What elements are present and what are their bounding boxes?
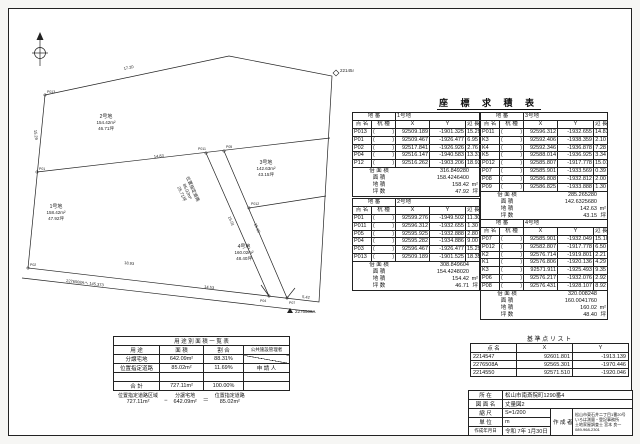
manager-cell: 申 請 人 bbox=[244, 364, 290, 373]
benchmark-row: 2276508A92565.301-1970.446 bbox=[471, 361, 629, 369]
chi-label: 地 積 bbox=[481, 206, 533, 213]
lot-area: 154.42m² bbox=[96, 120, 116, 125]
division-line-1 bbox=[37, 138, 330, 172]
coord-row: P013() 92509.189-1901.52518.35 bbox=[353, 254, 480, 262]
tsubo-unit: 坪 bbox=[597, 312, 607, 319]
parcel-map: P013 P01 P02 P011 P05 P04 P07 P012 22145… bbox=[14, 12, 354, 342]
coord-row: K3() 92592.406-1938.3592.10 bbox=[481, 136, 608, 144]
col-y: Y bbox=[558, 120, 594, 128]
formula-term-road: 位置指定道路 85.02m² bbox=[215, 392, 245, 405]
coord-rows: P011() 92596.312-1932.65514.83 K3() 9259… bbox=[481, 128, 608, 191]
lot-name: 1号地 bbox=[50, 203, 63, 210]
lot-label-3: 3号地 142.63m² 43.15坪 bbox=[256, 159, 276, 178]
coord-table-lot2: 地 番 2号地 点 名 杭 種 X Y 辺 長 P01() 92599.276-… bbox=[352, 198, 480, 291]
benchmark-row: 221454792601.801-1913.139 bbox=[471, 353, 629, 361]
unit-value: m bbox=[503, 418, 551, 427]
coord-table-lot3: 地 番 3号地 点 名 杭 種 X Y 辺 長 P011() 92596.312… bbox=[480, 112, 608, 221]
col-use: 用 途 bbox=[114, 346, 160, 355]
chi-value: 158.42 bbox=[405, 182, 469, 189]
maker-box: 松山市東石井二丁目1番20号 いろは測量・登記事務所 土地家屋調査士 宮本 良一… bbox=[573, 409, 633, 436]
tsubo-unit: 坪 bbox=[469, 283, 479, 290]
drawing-name-label: 図 面 名 bbox=[469, 400, 503, 409]
lot-number: 4号地 bbox=[524, 220, 608, 228]
tsubo-value: 47.92 bbox=[405, 189, 469, 196]
tsubo-value: 48.40 bbox=[533, 312, 597, 319]
point-label: P07 bbox=[289, 301, 295, 305]
coord-row: P013() 92509.189-1901.32515.29 bbox=[353, 128, 480, 136]
col-x: X bbox=[524, 227, 558, 235]
col-kui: 杭 種 bbox=[500, 120, 524, 128]
benchmark-table: 点 名 X Y 221454792601.801-1913.139 227650… bbox=[470, 343, 629, 377]
col-point: 点 名 bbox=[481, 227, 500, 235]
coord-row: P01() 92599.276-1949.50211.30 bbox=[353, 214, 480, 222]
lot-area: 160.02m² bbox=[234, 250, 254, 255]
term-label: 位置指定道路 bbox=[215, 392, 245, 399]
col-y: Y bbox=[430, 206, 466, 214]
usage-row-total: 合 計 727.11m² 100.00% bbox=[114, 382, 290, 391]
bai-label: 倍 面 積 bbox=[481, 192, 533, 199]
coord-row: P02() 92517.841-1926.9262.76 bbox=[353, 144, 480, 152]
sums-block: 倍 面 積316.849280 面 積158.4246400 地 積158.42… bbox=[353, 168, 480, 197]
lot-tsubo: 47.92坪 bbox=[48, 215, 64, 222]
m2-unit: m² bbox=[469, 276, 479, 283]
benchmark-label: 2214547 bbox=[340, 68, 354, 73]
col-point: 点 名 bbox=[353, 120, 372, 128]
bai-value: 308.849604 bbox=[405, 262, 469, 269]
equals-operator: ＝ bbox=[203, 395, 209, 405]
coord-row: P08() 92586.808-1932.8122.00 bbox=[481, 176, 608, 184]
lot-label-2: 2号地 154.42m² 46.71坪 bbox=[96, 113, 116, 132]
coord-row: P011() 92596.312-1932.6551.30 bbox=[353, 222, 480, 230]
lot-number: 3号地 bbox=[524, 113, 608, 121]
lot-tsubo: 46.71坪 bbox=[98, 125, 114, 132]
col-y: Y bbox=[430, 120, 466, 128]
chi-value: 142.63 bbox=[533, 206, 597, 213]
road-label: 位置指定道路 85.02m² 25.71坪 bbox=[173, 175, 202, 208]
usage-area-table: 用 途 別 面 積 一 覧 表 用 途 面 積 割 合 公共施設管理者 分譲宅地… bbox=[113, 336, 290, 391]
chi-value: 154.42 bbox=[405, 276, 469, 283]
col-point: 点 名 bbox=[481, 120, 500, 128]
point-label: P04 bbox=[260, 299, 266, 303]
term-label: 位置指定道路区域 bbox=[118, 392, 158, 399]
col-point: 点 名 bbox=[353, 206, 372, 214]
term-value: 642.09m² bbox=[174, 399, 197, 405]
col-x: X bbox=[396, 206, 430, 214]
lot-tsubo: 48.40坪 bbox=[236, 255, 252, 262]
men-label: 面 積 bbox=[481, 298, 533, 305]
men-value: 142.6325680 bbox=[533, 199, 597, 206]
use-cell: 合 計 bbox=[114, 382, 160, 391]
edge-length: 17.20 bbox=[123, 64, 135, 71]
edge-length: 15.01 bbox=[227, 215, 236, 227]
chi-label: 地 積 bbox=[353, 276, 405, 283]
bai-label: 倍 面 積 bbox=[481, 291, 533, 298]
area-cell: 85.02m² bbox=[160, 364, 204, 373]
coord-table-lot4: 地 番 4号地 点 名 杭 種 X Y 辺 長 P07() 92585.901-… bbox=[480, 219, 608, 320]
sums-block: 倍 面 積308.849604 面 積154.4248020 地 積154.42… bbox=[353, 262, 480, 291]
map-note: 2276508Aへ 145.373 bbox=[66, 278, 105, 287]
edge-length: 15.29 bbox=[33, 130, 39, 141]
men-value: 160.0041760 bbox=[533, 298, 597, 305]
point-label: P02 bbox=[30, 263, 36, 267]
term-value: 85.02m² bbox=[215, 399, 245, 405]
lot-area: 158.42m² bbox=[46, 210, 66, 215]
coord-row: P07() 92585.901-1932.04915.10 bbox=[481, 235, 608, 243]
sums-block: 倍 面 積320.008248 面 積160.0041760 地 積160.02… bbox=[481, 290, 608, 319]
col-x: X bbox=[396, 120, 430, 128]
division-line-2 bbox=[249, 196, 326, 208]
term-value: 727.11m² bbox=[118, 399, 158, 405]
col-x: X bbox=[524, 120, 558, 128]
point-label: P011 bbox=[198, 147, 206, 151]
sums-block: 倍 面 積285.265280 面 積142.6325680 地 積142.63… bbox=[481, 191, 608, 220]
benchmark-row: 221455092571.510-1920.046 bbox=[471, 369, 629, 377]
coord-row: P08() 92576.431-1928.1078.92 bbox=[481, 283, 608, 291]
col-ratio: 割 合 bbox=[204, 346, 244, 355]
chiban-label: 地 番 bbox=[481, 113, 524, 121]
ratio-cell: 88.31% bbox=[204, 355, 244, 364]
coord-row: K5() 92588.014-1936.9253.34 bbox=[481, 152, 608, 160]
col-point-name: 点 名 bbox=[471, 344, 517, 353]
title-block-row: 所 在 松山市南斎院町1290番4 bbox=[469, 391, 633, 400]
col-len: 辺 長 bbox=[594, 227, 608, 235]
tsubo-label: 坪 数 bbox=[481, 312, 533, 319]
tsubo-unit: 坪 bbox=[469, 189, 479, 196]
usage-row-empty bbox=[114, 373, 290, 382]
usage-row: 位置指定道路 85.02m² 11.69% 申 請 人 bbox=[114, 364, 290, 373]
col-kui: 杭 種 bbox=[500, 227, 524, 235]
lot-number: 2号地 bbox=[396, 199, 480, 207]
lot-label-1: 1号地 158.42m² 47.92坪 bbox=[46, 203, 66, 222]
coord-row: P04() 92595.282-1934.8869.00 bbox=[353, 238, 480, 246]
men-label: 面 積 bbox=[353, 269, 405, 276]
benchmark-list-title: 基 準 点 リ ス ト bbox=[470, 334, 628, 343]
parcel-map-svg: P013 P01 P02 P011 P05 P04 P07 P012 22145… bbox=[14, 12, 354, 342]
bai-label: 倍 面 積 bbox=[353, 262, 405, 269]
col-len: 辺 長 bbox=[466, 206, 480, 214]
lot-name: 3号地 bbox=[260, 159, 273, 166]
chi-label: 地 積 bbox=[481, 305, 533, 312]
col-manager: 公共施設管理者 bbox=[244, 346, 290, 355]
coord-rows: P01() 92599.276-1949.50211.30 P011() 925… bbox=[353, 214, 480, 261]
scale-label: 縮 尺 bbox=[469, 409, 503, 418]
unit-label: 単 位 bbox=[469, 418, 503, 427]
coord-row: P12() 92516.262-1903.20618.93 bbox=[353, 160, 480, 168]
use-cell: 位置指定道路 bbox=[114, 364, 160, 373]
diamond-benchmark-icon bbox=[333, 70, 339, 76]
bai-value: 320.008248 bbox=[533, 291, 597, 298]
lot-label-4: 4号地 160.02m² 48.40坪 bbox=[234, 243, 254, 262]
date-value: 令和 7年 1月30日 bbox=[503, 427, 551, 436]
col-x: X bbox=[517, 344, 573, 353]
col-area: 面 積 bbox=[160, 346, 204, 355]
men-value: 154.4248020 bbox=[405, 269, 469, 276]
benchmark-rows: 221454792601.801-1913.139 2276508A92565.… bbox=[471, 353, 629, 377]
area-cell: 727.11m² bbox=[160, 382, 204, 391]
title-block-row: 縮 尺 S=1/200 作 成 者 松山市東石井二丁目1番20号 いろは測量・登… bbox=[469, 409, 633, 418]
ratio-cell: 11.69% bbox=[204, 364, 244, 373]
edge-length: 14.53 bbox=[204, 284, 215, 290]
edge-length: 18.93 bbox=[124, 260, 135, 266]
m2-unit: m² bbox=[597, 305, 607, 312]
formula-term-lots: 分譲宅地 642.09m² bbox=[174, 392, 197, 405]
lot-tsubo: 43.15坪 bbox=[258, 171, 274, 178]
tsubo-label: 坪 数 bbox=[353, 189, 405, 196]
manager-cell bbox=[244, 382, 290, 391]
edge-length: 14.83 bbox=[154, 153, 165, 159]
use-cell: 分譲宅地 bbox=[114, 355, 160, 364]
chiban-label: 地 番 bbox=[353, 113, 396, 121]
area-formula: 位置指定道路区域 727.11m² − 分譲宅地 642.09m² ＝ 位置指定… bbox=[118, 392, 245, 405]
diagonal-cell bbox=[244, 355, 290, 364]
spur-line-2 bbox=[287, 288, 295, 298]
ratio-cell: 100.00% bbox=[204, 382, 244, 391]
coord-row: P011() 92596.312-1932.65514.83 bbox=[481, 128, 608, 136]
col-y: Y bbox=[573, 344, 629, 353]
maker-label: 作 成 者 bbox=[551, 409, 573, 436]
coord-table-lot1: 地 番 1号地 点 名 杭 種 X Y 辺 長 P013() 92509.189… bbox=[352, 112, 480, 197]
tsubo-value: 46.71 bbox=[405, 283, 469, 290]
lot-name: 2号地 bbox=[100, 113, 113, 120]
lot-number: 1号地 bbox=[396, 113, 480, 121]
coord-row: P04() 92516.147-1940.58313.31 bbox=[353, 152, 480, 160]
area-cell: 642.09m² bbox=[160, 355, 204, 364]
date-label: 作成年月日 bbox=[469, 427, 503, 436]
scale-value: S=1/200 bbox=[503, 409, 551, 418]
drawing-name-value: 丈量図2 bbox=[503, 400, 633, 409]
minus-operator: − bbox=[164, 398, 168, 405]
page-title-text: 座 標 求 積 表 bbox=[437, 98, 541, 110]
coord-row: K4() 92592.346-1936.8787.28 bbox=[481, 144, 608, 152]
tsubo-label: 坪 数 bbox=[353, 283, 405, 290]
coord-row: K1() 92576.806-1920.1364.29 bbox=[481, 259, 608, 267]
edge-length: 5.42 bbox=[302, 294, 311, 300]
north-arrow-icon bbox=[32, 32, 48, 66]
col-y: Y bbox=[558, 227, 594, 235]
coord-rows: P07() 92585.901-1932.04915.10 P012() 925… bbox=[481, 235, 608, 290]
road-edge-line bbox=[22, 278, 315, 312]
coord-row: K3() 92571.911-1925.4939.35 bbox=[481, 267, 608, 275]
lot-name: 4号地 bbox=[238, 243, 251, 250]
col-kui: 杭 種 bbox=[372, 206, 396, 214]
usage-table-title: 用 途 別 面 積 一 覧 表 bbox=[114, 337, 290, 346]
title-block: 所 在 松山市南斎院町1290番4 図 面 名 丈量図2 縮 尺 S=1/200… bbox=[468, 390, 633, 436]
usage-row: 分譲宅地 642.09m² 88.31% bbox=[114, 355, 290, 364]
coord-row: K2() 92576.714-1919.8012.21 bbox=[481, 251, 608, 259]
col-kui: 杭 種 bbox=[372, 120, 396, 128]
chiban-label: 地 番 bbox=[481, 220, 524, 228]
location-value: 松山市南斎院町1290番4 bbox=[503, 391, 633, 400]
m2-unit: m² bbox=[597, 206, 607, 213]
coord-row: P012() 92585.807-1917.77815.01 bbox=[481, 160, 608, 168]
bai-value: 285.265280 bbox=[533, 192, 597, 199]
coord-row: P07() 92585.901-1933.5690.39 bbox=[481, 168, 608, 176]
coord-rows: P013() 92509.189-1901.32515.29 P01() 925… bbox=[353, 128, 480, 167]
term-label: 分譲宅地 bbox=[174, 392, 197, 399]
point-label: P05 bbox=[226, 145, 232, 149]
page-title: 座 標 求 積 表 bbox=[352, 96, 626, 109]
coord-row: P01() 92509.467-1926.4776.95 bbox=[353, 136, 480, 144]
men-label: 面 積 bbox=[481, 199, 533, 206]
point-label: P013 bbox=[47, 90, 55, 94]
point-label: P012 bbox=[251, 202, 259, 206]
coord-row: P012() 92582.807-1917.7786.50 bbox=[481, 243, 608, 251]
title-block-row: 図 面 名 丈量図2 bbox=[469, 400, 633, 409]
edge-length: 15.10 bbox=[253, 222, 262, 234]
benchmark-label: 2276508A bbox=[295, 309, 316, 314]
chi-value: 160.02 bbox=[533, 305, 597, 312]
col-len: 辺 長 bbox=[466, 120, 480, 128]
benchmark-2214547: 2214547 bbox=[333, 68, 354, 76]
lot-area: 142.63m² bbox=[256, 166, 276, 171]
col-len: 辺 長 bbox=[594, 120, 608, 128]
point-label: P01 bbox=[39, 167, 45, 171]
coord-row: P06() 92576.217-1932.0762.92 bbox=[481, 275, 608, 283]
coord-row: P09() 92586.825-1933.8881.30 bbox=[481, 183, 608, 191]
formula-term-total: 位置指定道路区域 727.11m² bbox=[118, 392, 158, 405]
location-label: 所 在 bbox=[469, 391, 503, 400]
men-value: 158.4246400 bbox=[405, 175, 469, 182]
bai-value: 316.849280 bbox=[405, 168, 469, 175]
chiban-label: 地 番 bbox=[353, 199, 396, 207]
site-boundary bbox=[28, 56, 332, 302]
maker-phone: 089-968-2301 bbox=[575, 427, 630, 432]
coord-row: P05() 92595.925-1932.8882.80 bbox=[353, 230, 480, 238]
coord-row: P03() 92596.467-1926.47715.29 bbox=[353, 246, 480, 254]
